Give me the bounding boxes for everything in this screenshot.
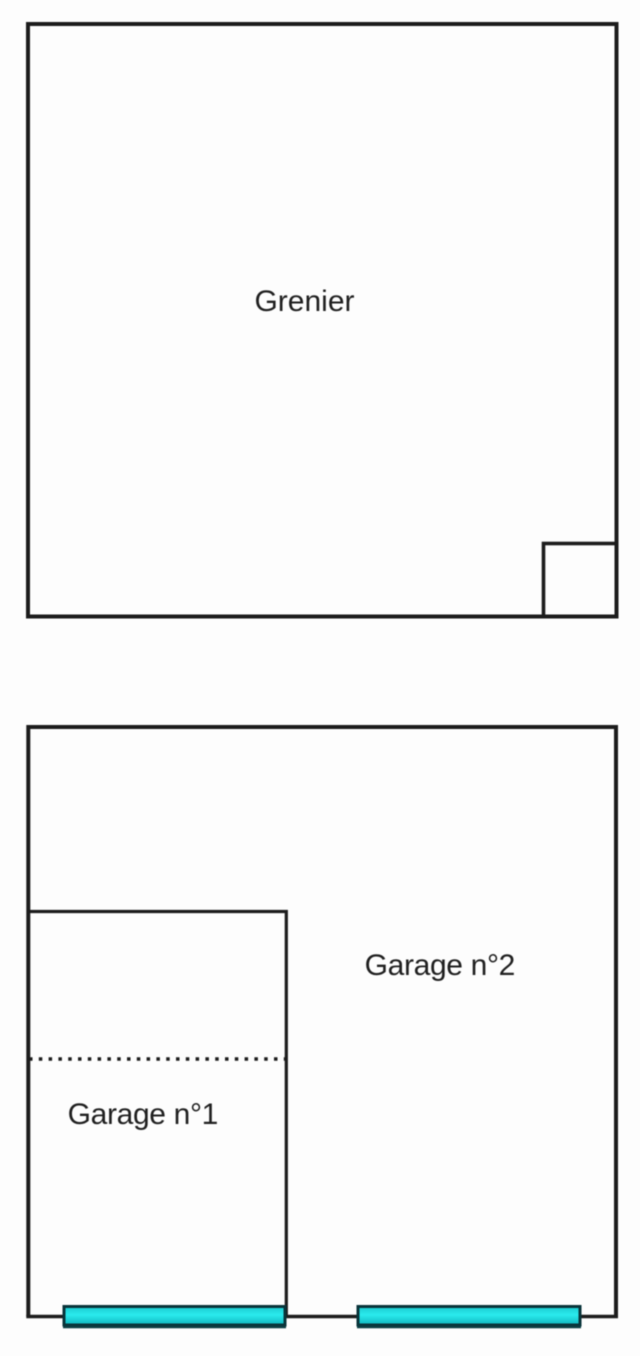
svg-text:Garage n°1: Garage n°1 — [68, 1098, 218, 1131]
svg-text:Grenier: Grenier — [254, 285, 354, 318]
svg-text:Garage n°2: Garage n°2 — [365, 949, 515, 982]
